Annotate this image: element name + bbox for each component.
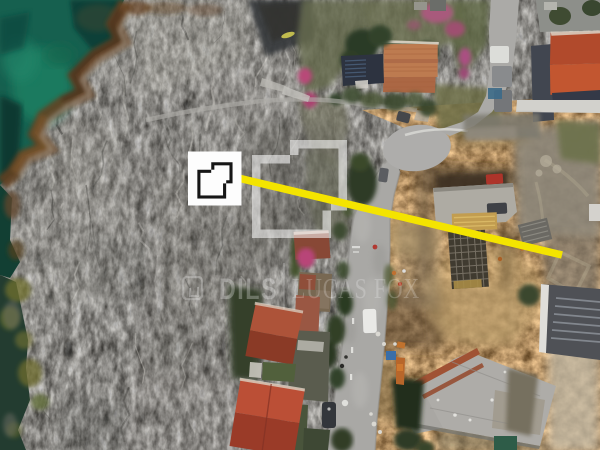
svg-text:DILS: DILS: [219, 273, 278, 306]
svg-text:LUCAS FOX: LUCAS FOX: [292, 274, 420, 305]
